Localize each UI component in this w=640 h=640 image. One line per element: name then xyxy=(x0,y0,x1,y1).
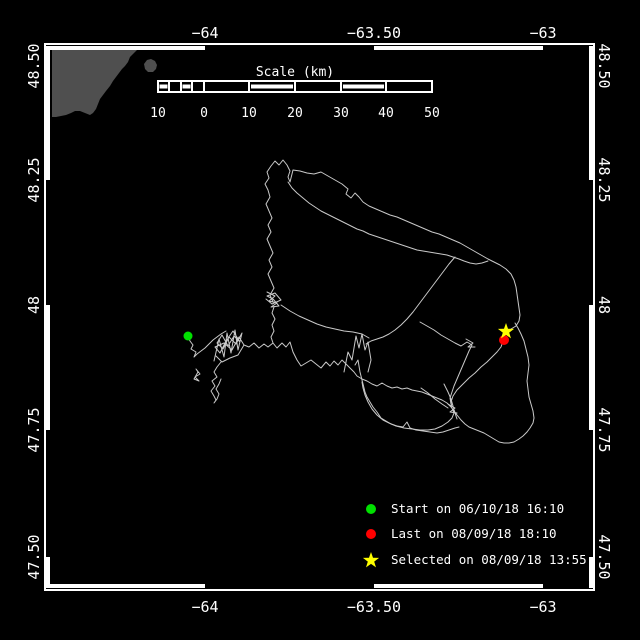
frame-band-top-2 xyxy=(374,46,543,50)
lat-label-left-4825: 48.25 xyxy=(25,157,43,202)
scale-tick-label: 10 xyxy=(150,106,166,121)
legend-start-label: Start on 06/10/18 16:10 xyxy=(391,501,564,516)
frame-band-bottom-1 xyxy=(46,584,205,588)
lat-label-left-4750: 47.50 xyxy=(25,534,43,579)
last-marker xyxy=(499,335,509,345)
lon-label-top-63: −63 xyxy=(529,24,556,42)
frame-band-right-1 xyxy=(589,46,593,180)
frame-band-bottom-2 xyxy=(374,584,543,588)
lat-label-left-4775: 47.75 xyxy=(25,407,43,452)
frame-band-right-2 xyxy=(589,305,593,430)
lon-label-bottom-63: −63 xyxy=(529,598,556,616)
legend-last-dot xyxy=(366,529,376,539)
scale-bar-title: Scale (km) xyxy=(256,65,334,80)
lon-label-bottom-6350: −63.50 xyxy=(347,598,401,616)
scale-stripe xyxy=(251,85,293,89)
legend-selected-label: Selected on 08/09/18 13:55 xyxy=(391,552,587,567)
frame-band-left-2 xyxy=(46,305,50,430)
lat-label-right-4825: 48.25 xyxy=(595,157,613,202)
frame-band-right-3 xyxy=(589,557,593,588)
scale-tick-label: 0 xyxy=(200,106,208,121)
scale-stripe-small xyxy=(183,85,191,89)
start-marker xyxy=(184,332,193,341)
scale-tick-label: 30 xyxy=(333,106,349,121)
scale-tick-label: 20 xyxy=(287,106,303,121)
lat-label-right-48: 48 xyxy=(595,296,613,314)
legend: Start on 06/10/18 16:10 Last on 08/09/18… xyxy=(363,501,587,567)
lon-label-top-64: −64 xyxy=(191,24,218,42)
lon-label-bottom-64: −64 xyxy=(191,598,218,616)
scale-tick-label: 10 xyxy=(241,106,257,121)
frame-band-left-3 xyxy=(46,557,50,588)
frame-band-top-1 xyxy=(46,46,205,50)
frame-band-left-1 xyxy=(46,46,50,180)
legend-start-dot xyxy=(366,504,376,514)
lat-label-right-4850: 48.50 xyxy=(595,43,613,88)
lon-label-top-6350: −63.50 xyxy=(347,24,401,42)
scale-tick-label: 40 xyxy=(378,106,394,121)
scale-stripe-small xyxy=(160,85,168,89)
trajectory-map: −64 −63.50 −63 −64 −63.50 −63 48.50 48.2… xyxy=(0,0,640,640)
lat-label-left-48: 48 xyxy=(25,296,43,314)
legend-last-label: Last on 08/09/18 18:10 xyxy=(391,526,557,541)
lat-label-left-4850: 48.50 xyxy=(25,43,43,88)
lat-label-right-4775: 47.75 xyxy=(595,407,613,452)
scale-tick-label: 50 xyxy=(424,106,440,121)
lat-label-right-4750: 47.50 xyxy=(595,534,613,579)
scale-stripe xyxy=(343,85,384,89)
